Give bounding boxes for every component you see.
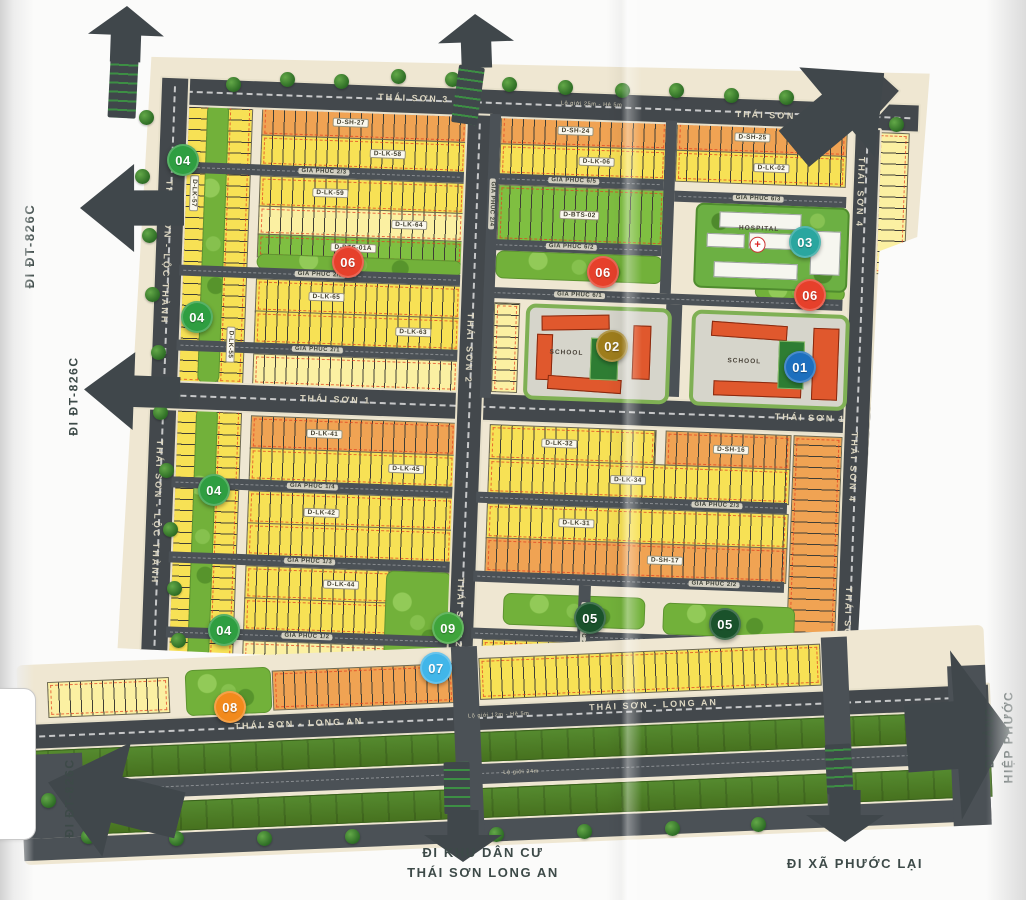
zone-marker-05: 05 — [709, 608, 741, 640]
exit-label-line: ĐI ĐT-826C — [61, 758, 80, 837]
tree-icon — [257, 831, 272, 846]
exit-label: ĐI ĐT-826C — [61, 758, 80, 837]
zone-marker-01: 01 — [784, 351, 816, 383]
tree-icon — [669, 83, 684, 98]
tree-icon — [167, 581, 182, 596]
zone-marker-06: 06 — [332, 246, 364, 278]
exit-label-line: HIỆP PHƯỚC — [999, 691, 1018, 784]
zone-marker-04: 04 — [181, 301, 213, 333]
zone-marker-05: 05 — [574, 602, 606, 634]
zone-marker-07: 07 — [420, 652, 452, 684]
tree-icon — [41, 793, 56, 808]
tree-icon — [391, 69, 406, 84]
exit-arrow — [83, 350, 182, 431]
tree-icon — [751, 817, 766, 832]
tree-icon — [159, 463, 174, 478]
tree-icon — [779, 90, 794, 105]
zone-marker-04: 04 — [208, 614, 240, 646]
zone-marker-03: 03 — [789, 226, 821, 258]
exit-label: ĐI ĐT-826C — [65, 356, 84, 435]
tree-icon — [889, 117, 904, 132]
zone-marker-04: 04 — [167, 144, 199, 176]
zone-marker-06: 06 — [587, 256, 619, 288]
side-panel-partial — [0, 688, 36, 840]
exit-arrow — [80, 164, 184, 252]
tree-icon — [502, 77, 517, 92]
exit-arrow — [806, 790, 884, 842]
tree-icon — [665, 821, 680, 836]
tree-icon — [577, 824, 592, 839]
tree-icon — [615, 83, 630, 98]
tree-icon — [139, 110, 154, 125]
tree-icon — [151, 345, 166, 360]
exit-arrow — [34, 725, 195, 872]
exit-arrow — [444, 762, 471, 814]
exit-label-line: ĐI ĐT-826C — [20, 204, 40, 289]
exit-label: ĐI XÃ PHƯỚC LẠI — [787, 854, 923, 874]
tree-icon — [558, 80, 573, 95]
tree-icon — [142, 228, 157, 243]
tree-icon — [171, 633, 186, 648]
tree-icon — [135, 169, 150, 184]
zone-marker-08: 08 — [214, 691, 246, 723]
exit-arrow — [108, 59, 139, 118]
exit-arrow — [756, 28, 922, 194]
tree-icon — [334, 74, 349, 89]
exit-label: ĐI CẢNGHIỆP PHƯỚC — [980, 691, 1017, 784]
exit-label-line: ĐI KHU DÂN CƯ — [407, 843, 559, 863]
zone-marker-02: 02 — [596, 330, 628, 362]
exit-label: ĐI ĐT-826C — [20, 204, 40, 289]
tree-icon — [226, 77, 241, 92]
annotation-layer: ĐI ĐT-826CĐI ĐT-826CĐI ĐT-826CĐI CẢNGHIỆ… — [0, 0, 1026, 900]
zone-marker-09: 09 — [432, 612, 464, 644]
zone-marker-06: 06 — [794, 279, 826, 311]
tree-icon — [163, 522, 178, 537]
tree-icon — [724, 88, 739, 103]
exit-label-line: ĐI ĐT-826C — [65, 356, 84, 435]
tree-icon — [345, 829, 360, 844]
exit-label-line: THÁI SƠN LONG AN — [407, 863, 559, 883]
master-plan-map: GIA PHÚC 2/3GIA PHÚC 2/2GIA PHÚC 2/1GIA … — [0, 0, 1026, 900]
exit-label-line: ĐI XÃ PHƯỚC LẠI — [787, 854, 923, 874]
exit-label: ĐI KHU DÂN CƯTHÁI SƠN LONG AN — [407, 843, 559, 883]
tree-icon — [145, 287, 160, 302]
exit-label-line: ĐI CẢNG — [980, 691, 999, 784]
tree-icon — [280, 72, 295, 87]
exit-arrow — [825, 743, 854, 794]
zone-marker-04: 04 — [198, 474, 230, 506]
exit-arrow — [87, 5, 165, 64]
exit-arrow — [437, 13, 515, 70]
